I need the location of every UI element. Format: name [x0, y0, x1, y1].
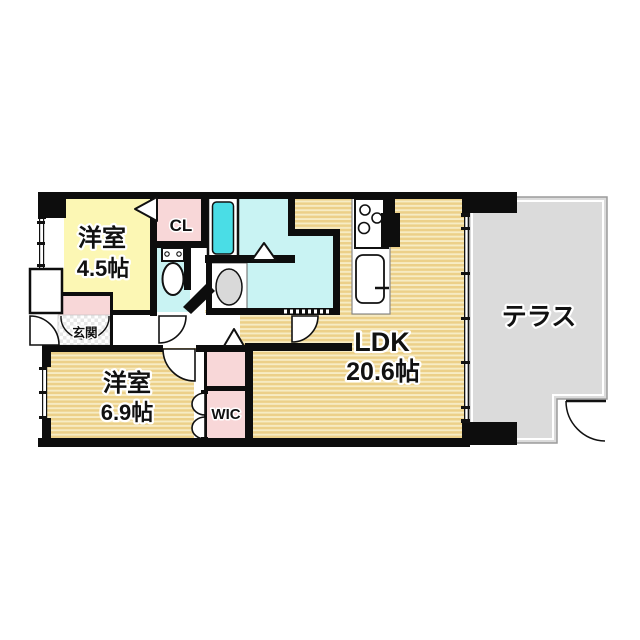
stove-burner [360, 205, 370, 215]
label-terrace: テラス [502, 303, 577, 331]
toilet-knob [177, 252, 181, 256]
wall-toilet-right [184, 244, 191, 290]
door-stop [201, 390, 208, 394]
wall-shoebox-top [57, 292, 113, 296]
floor-closet-upper [205, 350, 247, 388]
toilet-bowl [163, 263, 184, 295]
wall-closet-right [245, 343, 253, 440]
bathtub-basin [213, 202, 234, 254]
wall-washroom-top [288, 229, 340, 236]
label-wic: WIC [211, 406, 240, 423]
door-stop [201, 437, 208, 441]
wall-bottom [38, 438, 470, 447]
door-entrance [30, 316, 59, 345]
wall-entrance-right [110, 295, 113, 345]
wall-room2-left-lower [42, 418, 51, 440]
meter-box [30, 269, 62, 313]
wall-washroom-bottom [206, 308, 340, 315]
wall-cl-bottom [150, 241, 208, 248]
wall-hall-top [110, 310, 157, 315]
washbasin [216, 269, 242, 305]
pillar-top-right [462, 192, 517, 213]
wall-hall-bottom-left [44, 345, 163, 352]
window-room1-left [37, 219, 45, 268]
window-nook [44, 212, 64, 269]
wall-kitchen-block [381, 213, 400, 247]
label-ldk-name: LDK [354, 327, 410, 357]
kitchen-sink [356, 255, 384, 303]
label-room1-name: 洋室 [78, 224, 126, 252]
wall-cl-bath [201, 195, 208, 247]
wall-washroom-right [333, 229, 340, 315]
wall-bath-bottom [205, 255, 295, 263]
wall-room2-left-upper [42, 345, 51, 367]
toilet-knob [165, 252, 169, 256]
floor-washroom-ext [293, 234, 335, 264]
wall-hall-ldk [245, 343, 352, 351]
shoe-cabinet [58, 295, 112, 315]
stove-burner [359, 223, 370, 234]
label-room2-size: 6.9帖 [101, 400, 154, 425]
floor-plan-canvas: 洋室 4.5帖 CL LDK 20.6帖 テラス 洋室 6.9帖 WIC 玄関 [0, 0, 640, 640]
wall-kitchen-stub [383, 197, 395, 215]
terrace-door-arc [566, 401, 605, 441]
wall-closet-divider [204, 386, 247, 391]
wall-top [38, 192, 465, 199]
label-entrance: 玄関 [72, 325, 97, 340]
window-room2-left [39, 367, 47, 419]
pillar-bottom-right [462, 422, 517, 445]
stove-burner [372, 213, 382, 223]
label-ldk-size: 20.6帖 [346, 358, 420, 386]
label-closet: CL [170, 216, 193, 235]
label-room1-size: 4.5帖 [77, 256, 130, 281]
label-room2-name: 洋室 [103, 369, 151, 397]
floor-plan: 洋室 4.5帖 CL LDK 20.6帖 テラス 洋室 6.9帖 WIC 玄関 [0, 0, 640, 640]
wall-left-stub [38, 199, 46, 219]
